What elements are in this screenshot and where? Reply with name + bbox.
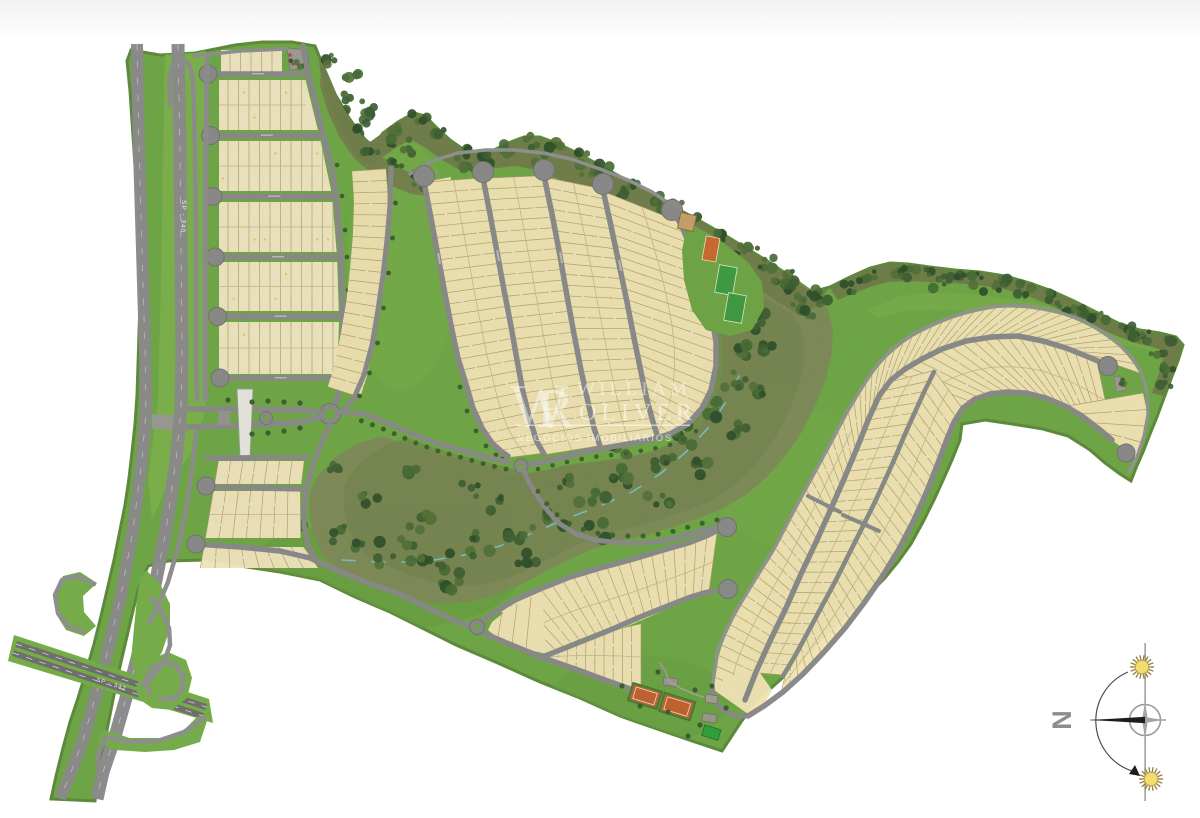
svg-text:NEGÓCIOS IMOBILIÁRIOS: NEGÓCIOS IMOBILIÁRIOS (517, 433, 673, 444)
svg-text:WILLIAM: WILLIAM (577, 379, 691, 400)
svg-text:OLIVER: OLIVER (579, 400, 697, 426)
svg-text:N: N (1047, 710, 1077, 730)
svg-text:R: R (537, 378, 575, 440)
